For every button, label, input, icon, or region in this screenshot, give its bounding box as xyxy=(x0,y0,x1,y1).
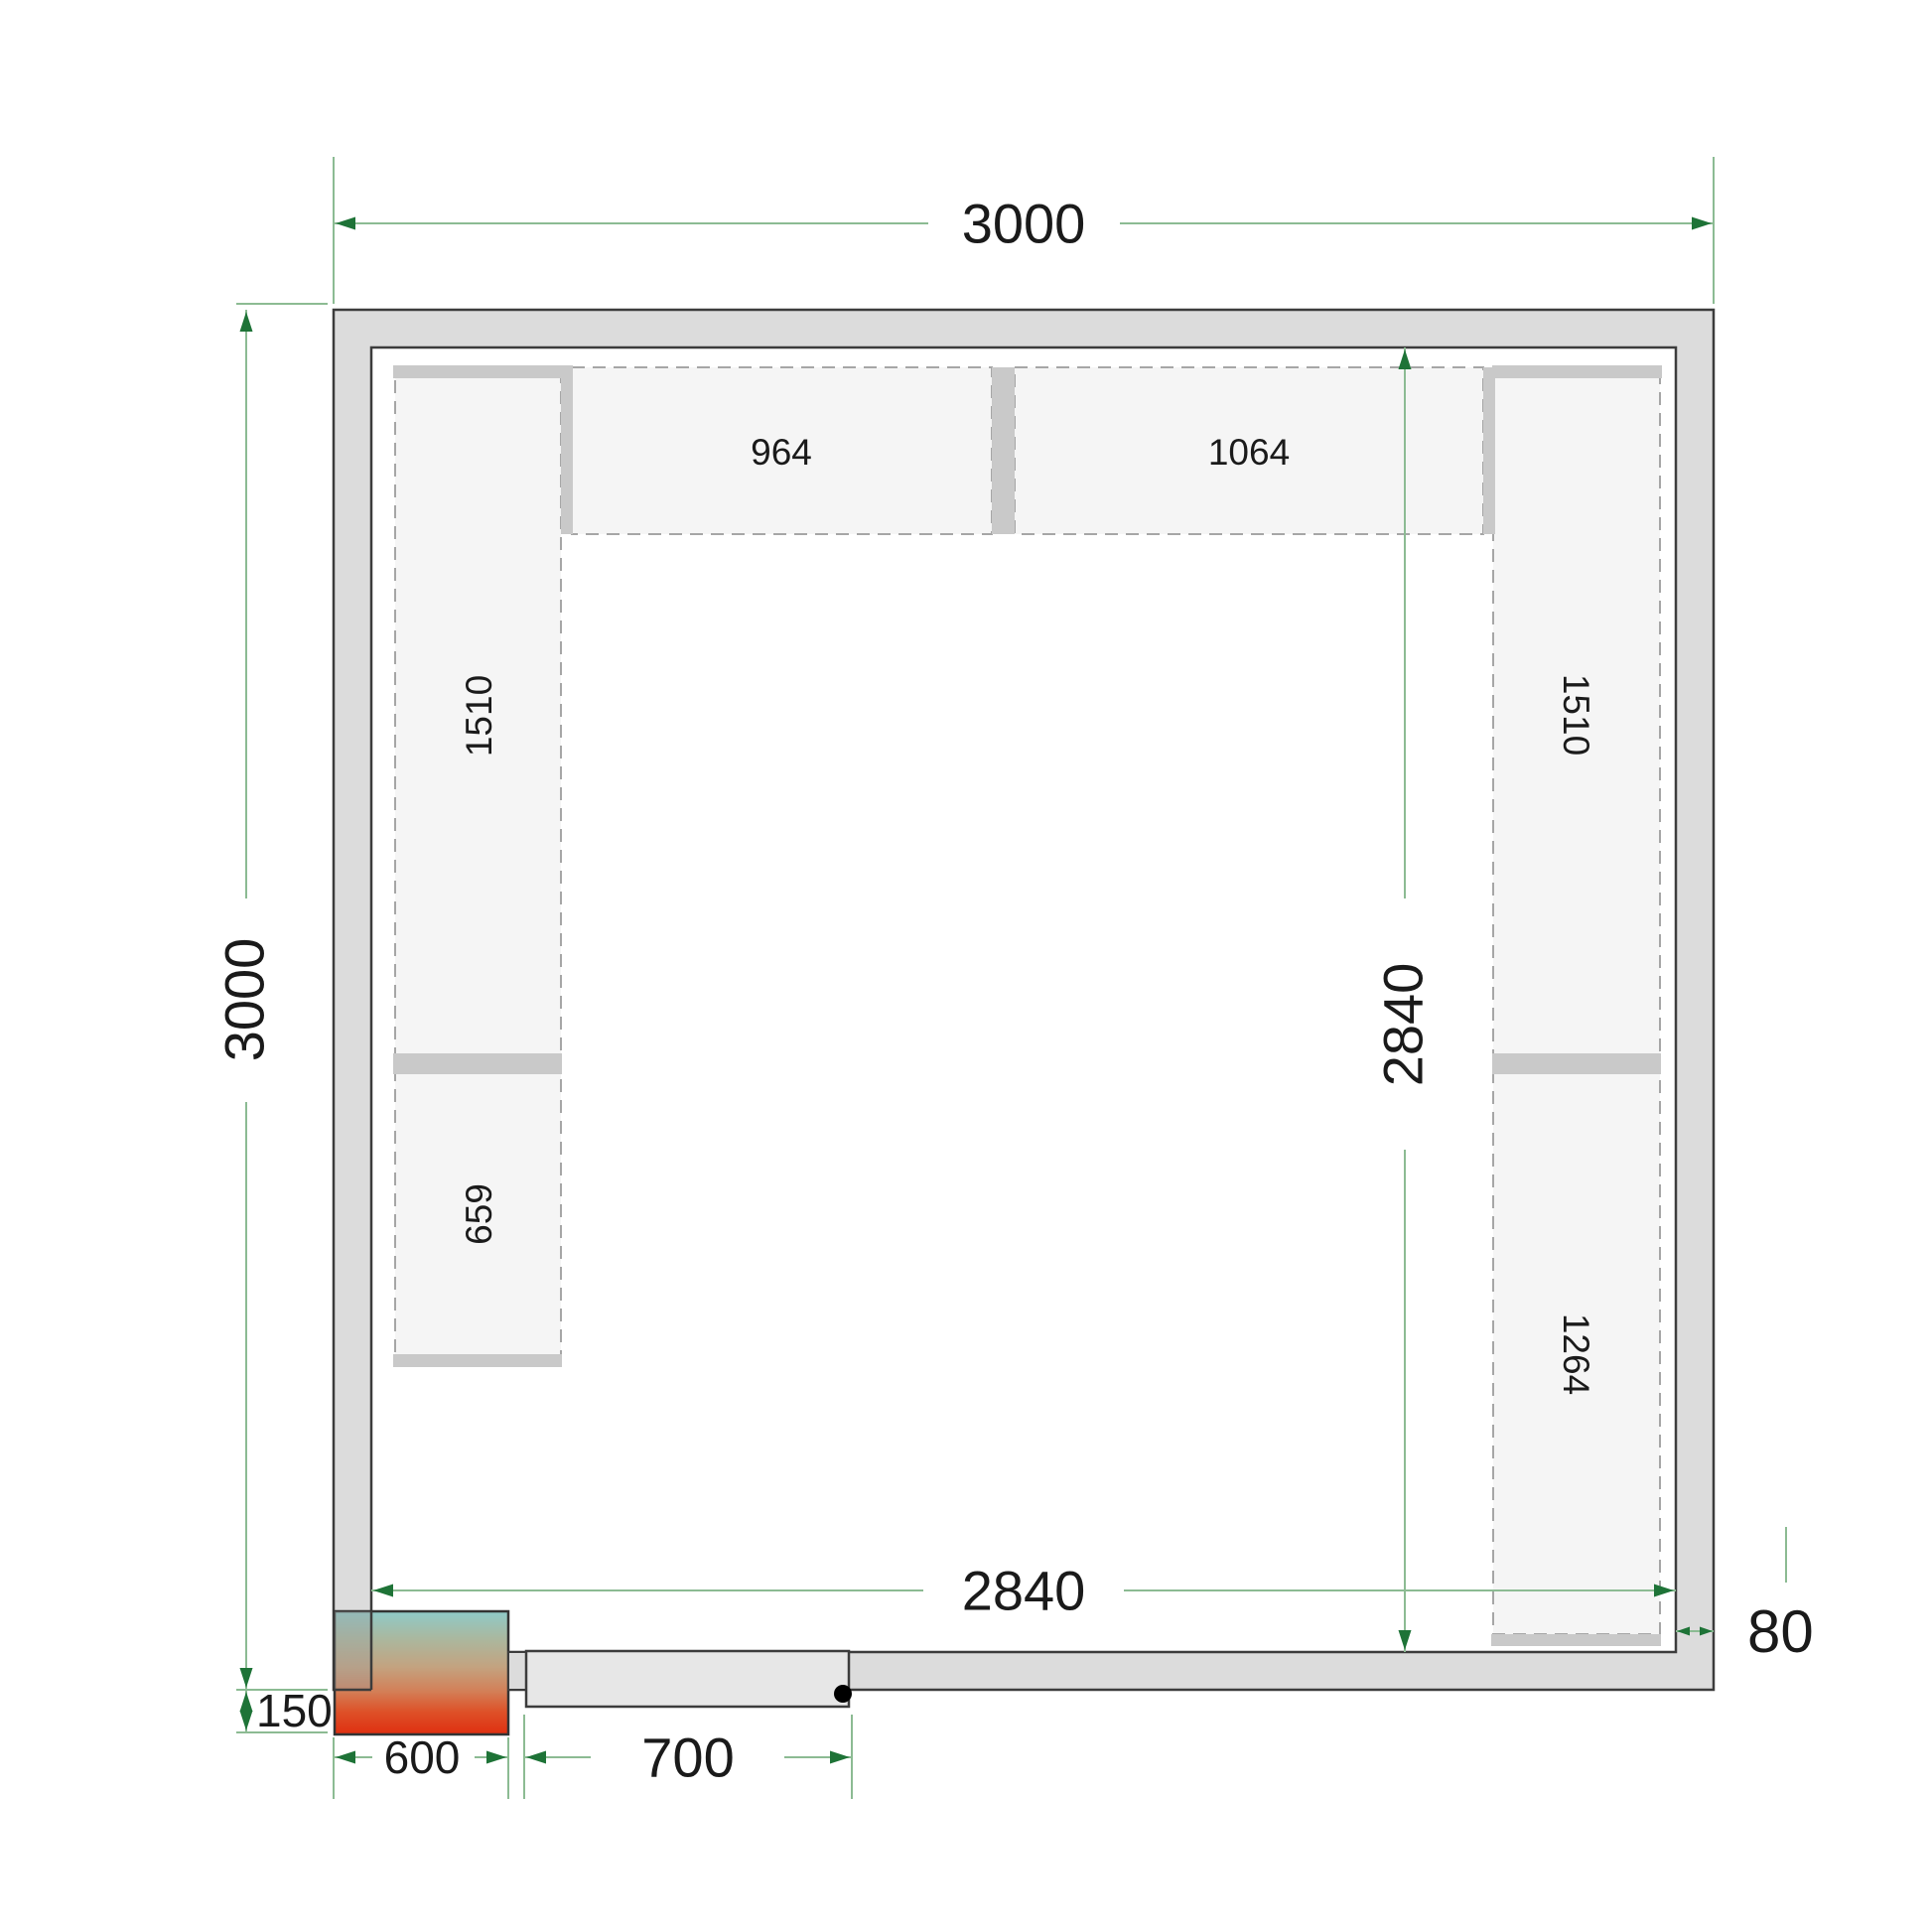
arrowhead-right xyxy=(1692,217,1712,230)
door-leaf xyxy=(526,1651,849,1707)
divider-right-column xyxy=(1492,1053,1661,1074)
arrowhead-right xyxy=(1654,1585,1674,1597)
dim-door-width-value: 700 xyxy=(641,1726,734,1789)
dim-unit-width: 600 xyxy=(334,1731,508,1799)
arrowhead-up xyxy=(240,1692,253,1712)
dim-door-width: 700 xyxy=(524,1715,852,1799)
door-group xyxy=(508,1651,852,1707)
dim-outer-height-value: 3000 xyxy=(213,938,276,1062)
divider-left-column xyxy=(393,1053,562,1074)
bracket-top-right-vertical xyxy=(1483,367,1495,534)
wall-top xyxy=(334,310,1714,347)
shelf-label-right-top: 1510 xyxy=(1556,674,1596,756)
dim-outer-height: 3000 xyxy=(213,304,328,1690)
shelving: 1510 659 964 1064 1510 1264 xyxy=(393,365,1662,1646)
arrowhead-right xyxy=(830,1751,850,1764)
arrowhead-left xyxy=(336,1751,355,1764)
wall-right xyxy=(1676,310,1714,1690)
bracket-top-right-horizontal xyxy=(1492,365,1662,378)
dim-outer-width-value: 3000 xyxy=(962,193,1086,255)
dim-unit-protrusion-value: 150 xyxy=(256,1685,333,1736)
arrowhead-up xyxy=(240,312,253,332)
dim-outer-width: 3000 xyxy=(334,157,1714,304)
wall-left xyxy=(334,310,371,1690)
dim-unit-width-value: 600 xyxy=(384,1731,461,1783)
arrowhead-down xyxy=(1399,1630,1412,1650)
floor-plan: 1510 659 964 1064 1510 1264 3000 3000 xyxy=(0,0,1932,1932)
arrowhead-left xyxy=(336,217,355,230)
arrowhead-up xyxy=(1399,349,1412,369)
bracket-top-left-vertical xyxy=(561,367,573,534)
door-frame-stub xyxy=(508,1652,526,1690)
cooling-unit-wall-overlay xyxy=(335,1611,371,1690)
dim-wall-thickness-value: 80 xyxy=(1747,1598,1814,1665)
shelf-right-column xyxy=(1493,371,1660,1634)
dim-inner-width: 2840 xyxy=(371,1560,1676,1622)
cooling-unit-group xyxy=(335,1611,508,1734)
door-hinge-dot xyxy=(834,1685,852,1703)
dim-inner-height-value: 2840 xyxy=(1372,963,1435,1087)
endcap-right-column xyxy=(1491,1634,1661,1646)
wall-inner-outline xyxy=(371,347,1676,1652)
shelf-label-top-right: 1064 xyxy=(1208,432,1290,473)
shelf-label-top-left: 964 xyxy=(751,432,812,473)
arrowhead-down xyxy=(240,1711,253,1730)
dim-inner-height: 2840 xyxy=(1372,347,1435,1652)
arrowhead-down xyxy=(240,1668,253,1688)
arrowhead-left xyxy=(526,1751,546,1764)
arrowhead-left xyxy=(373,1585,393,1597)
divider-top-middle xyxy=(992,367,1015,534)
dim-inner-width-value: 2840 xyxy=(962,1560,1086,1622)
arrowhead-right xyxy=(486,1751,506,1764)
shelf-label-right-bottom: 1264 xyxy=(1556,1313,1596,1395)
shelf-label-left-bottom: 659 xyxy=(459,1183,499,1245)
dim-unit-protrusion: 150 xyxy=(236,1685,333,1736)
endcap-left-column xyxy=(393,1354,562,1367)
bracket-top-left-horizontal xyxy=(393,365,573,378)
shelf-label-left-top: 1510 xyxy=(459,675,499,757)
